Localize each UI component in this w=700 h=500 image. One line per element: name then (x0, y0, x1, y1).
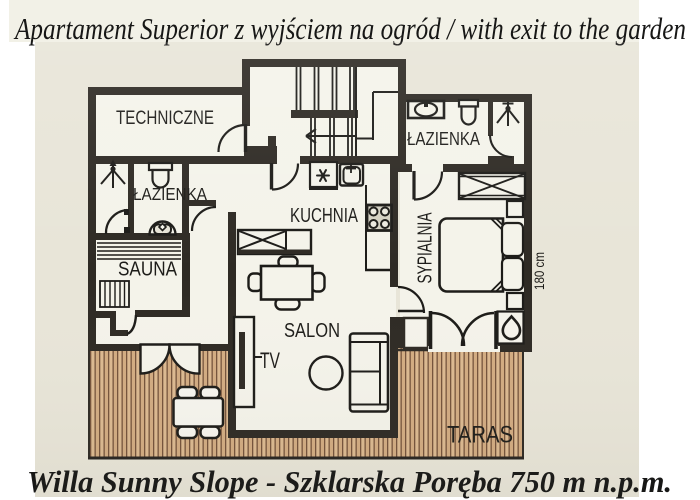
svg-text:Apartament Superior z wyjściem: Apartament Superior z wyjściem na ogród … (13, 11, 686, 46)
svg-text:180 cm: 180 cm (532, 252, 547, 290)
